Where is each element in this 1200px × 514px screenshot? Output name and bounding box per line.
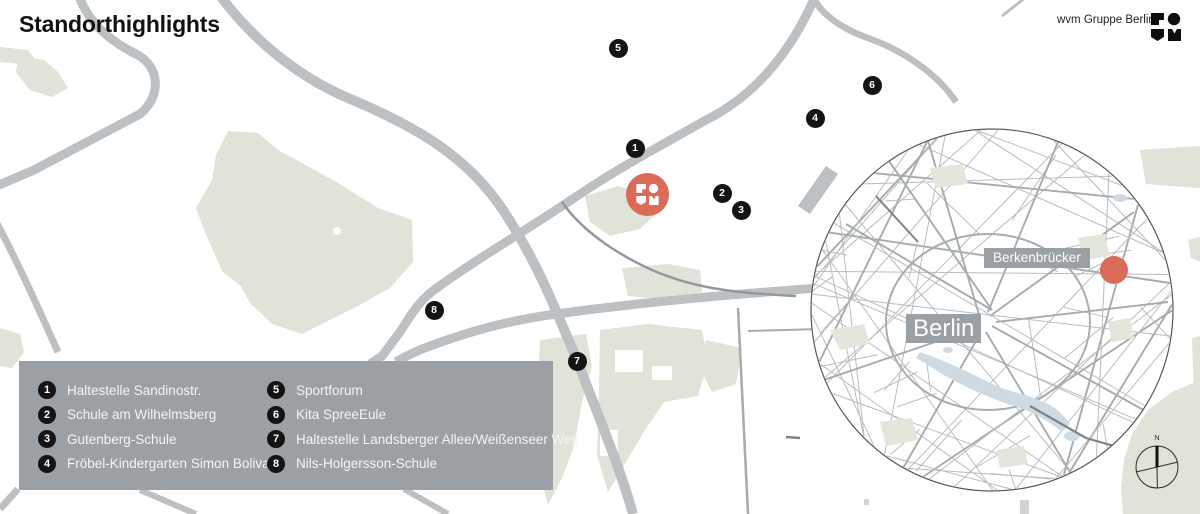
legend-box: 1Haltestelle Sandinostr.2Schule am Wilhe… <box>19 361 553 490</box>
map-marker-3: 3 <box>732 201 751 220</box>
legend-badge-8: 8 <box>267 455 285 473</box>
wvm-logo-icon <box>1151 13 1181 41</box>
map-marker-8: 8 <box>425 301 444 320</box>
map-marker-6: 6 <box>863 76 882 95</box>
legend-label-6: Kita SpreeEule <box>296 407 386 422</box>
legend-label-1: Haltestelle Sandinostr. <box>67 383 201 398</box>
compass-north-label: N <box>1154 433 1159 442</box>
site-location-marker <box>626 173 669 216</box>
legend-label-4: Fröbel-Kindergarten Simon Bolivar <box>67 456 274 471</box>
legend-label-3: Gutenberg-Schule <box>67 432 177 447</box>
legend-item-1: 1Haltestelle Sandinostr. <box>38 381 274 399</box>
wvm-logo-small-icon <box>636 184 659 205</box>
standorthighlights-map-page: N Standorthighlights wvm Gruppe Berlin B… <box>0 0 1200 514</box>
legend-badge-1: 1 <box>38 381 56 399</box>
map-marker-4: 4 <box>806 109 825 128</box>
legend-badge-2: 2 <box>38 406 56 424</box>
map-marker-7: 7 <box>568 352 587 371</box>
legend-label-7: Haltestelle Landsberger Allee/Weißenseer… <box>296 432 579 447</box>
inset-district-label: Berkenbrücker <box>984 248 1090 268</box>
legend-item-3: 3Gutenberg-Schule <box>38 430 274 448</box>
legend-item-5: 5Sportforum <box>267 381 579 399</box>
inset-city-label: Berlin <box>906 314 981 343</box>
legend-item-7: 7Haltestelle Landsberger Allee/Weißensee… <box>267 430 579 448</box>
page-title: Standorthighlights <box>19 11 220 38</box>
legend-item-2: 2Schule am Wilhelmsberg <box>38 406 274 424</box>
inset-location-dot <box>1100 256 1128 284</box>
legend-column-1: 1Haltestelle Sandinostr.2Schule am Wilhe… <box>38 381 274 479</box>
legend-label-8: Nils-Holgersson-Schule <box>296 456 437 471</box>
brand-credit: wvm Gruppe Berlin <box>1057 14 1155 26</box>
legend-item-6: 6Kita SpreeEule <box>267 406 579 424</box>
legend-label-2: Schule am Wilhelmsberg <box>67 407 216 422</box>
legend-badge-5: 5 <box>267 381 285 399</box>
map-marker-1: 1 <box>626 139 645 158</box>
legend-badge-4: 4 <box>38 455 56 473</box>
legend-label-5: Sportforum <box>296 383 363 398</box>
legend-badge-7: 7 <box>267 430 285 448</box>
map-marker-2: 2 <box>713 184 732 203</box>
legend-item-8: 8Nils-Holgersson-Schule <box>267 455 579 473</box>
legend-badge-3: 3 <box>38 430 56 448</box>
legend-badge-6: 6 <box>267 406 285 424</box>
map-marker-5: 5 <box>609 39 628 58</box>
legend-item-4: 4Fröbel-Kindergarten Simon Bolivar <box>38 455 274 473</box>
legend-column-2: 5Sportforum6Kita SpreeEule7Haltestelle L… <box>267 381 579 479</box>
